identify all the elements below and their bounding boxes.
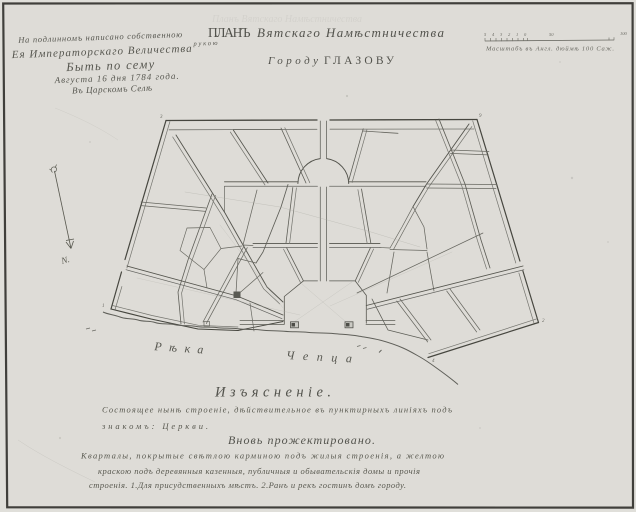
svg-text:Планъ Вятскаго Намѣстничества: Планъ Вятскаго Намѣстничества (211, 14, 362, 25)
svg-text:1: 1 (102, 304, 105, 309)
svg-text:1: 1 (516, 32, 518, 37)
svg-text:краскою подъ деревянныя казенн: краскою подъ деревянныя казенныя, публич… (98, 466, 420, 476)
svg-text:Состоящее нынѣ строеніе, дѣйст: Состоящее нынѣ строеніе, дѣйствительное … (102, 405, 453, 415)
svg-text:Вновь прожектировано.: Вновь прожектировано. (228, 433, 375, 447)
svg-text:ПЛАНЪ: ПЛАНЪ (208, 25, 252, 40)
svg-text:Кварталы, покрытые свѣтлою кар: Кварталы, покрытые свѣтлою карминою подъ… (80, 451, 444, 461)
svg-text:строенія. 1.Для присудственных: строенія. 1.Для присудственныхъ мѣстъ. 2… (89, 480, 406, 490)
svg-text:рукою: рукою (192, 40, 218, 48)
svg-text:Вятскаго Намѣстничества: Вятскаго Намѣстничества (257, 25, 445, 40)
svg-text:50: 50 (549, 32, 554, 37)
svg-text:Масштабъ въ Англ. дюймѣ 100 Са: Масштабъ въ Англ. дюймѣ 100 Саж. (485, 46, 614, 53)
svg-text:100: 100 (620, 31, 628, 36)
